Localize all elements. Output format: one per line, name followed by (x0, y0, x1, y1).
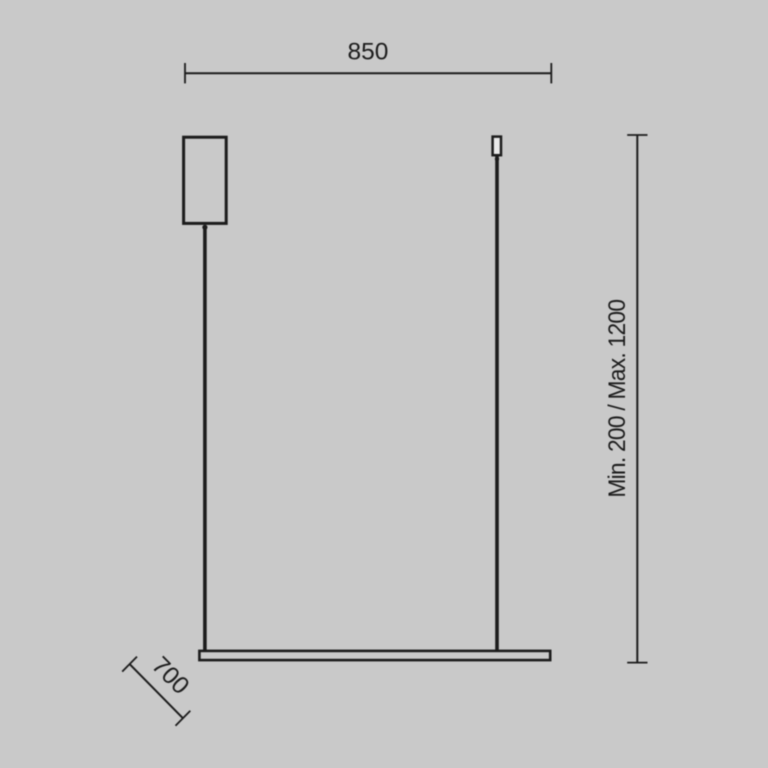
svg-text:850: 850 (348, 39, 389, 66)
svg-text:Min. 200 / Max. 1200: Min. 200 / Max. 1200 (603, 299, 630, 498)
